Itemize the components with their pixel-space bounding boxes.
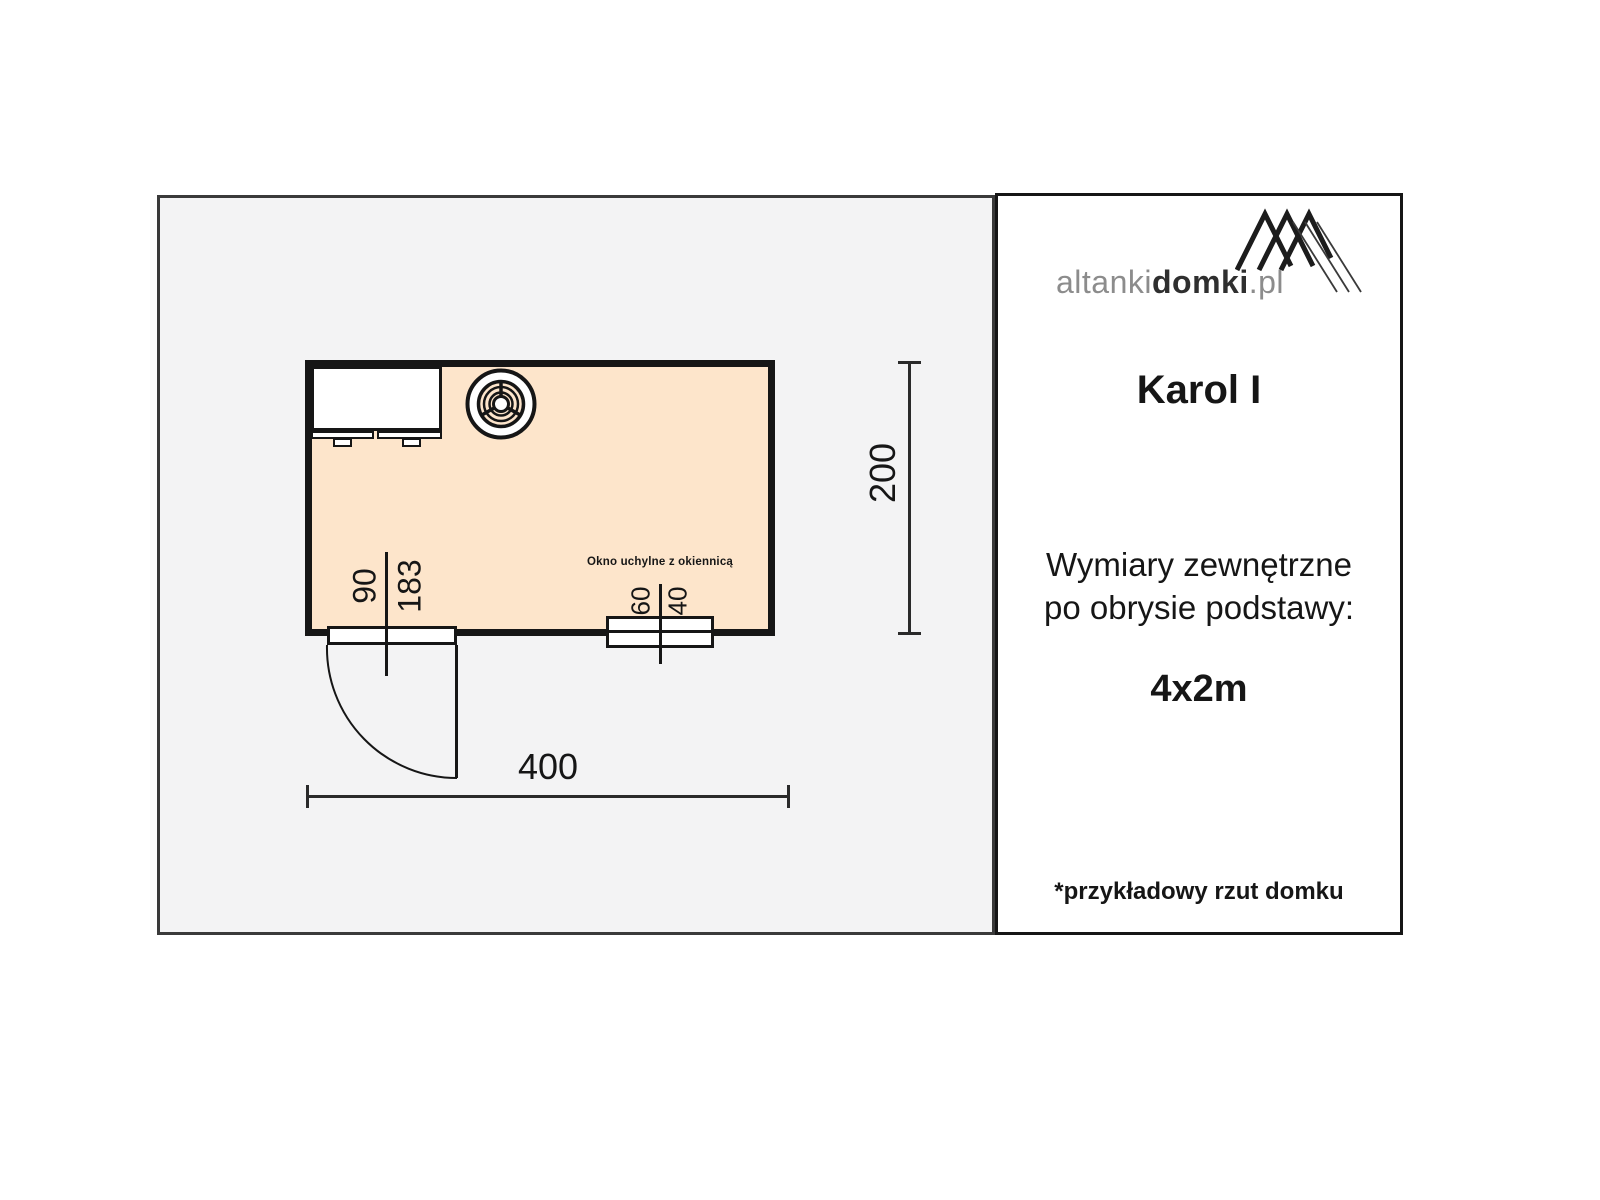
dimension-cap [787,785,790,808]
overall-width-dimension: 400 [448,746,648,788]
dimensions-caption-line1: Wymiary zewnętrzne [995,543,1403,586]
width-dimension-line [307,795,789,798]
size-value: 4x2m [995,668,1403,711]
door-swing-arc [323,642,463,784]
door-height-dimension: 183 [392,559,429,612]
counter-table [311,366,442,431]
counter-foot [333,438,352,447]
dimensions-caption: Wymiary zewnętrzne po obrysie podstawy: [995,543,1403,629]
footnote: *przykładowy rzut domku [995,878,1403,906]
door-dimension-line [385,552,388,676]
dimension-cap [306,785,309,808]
depth-dimension-line [908,362,911,635]
window-caption: Okno uchylne z okiennicą [560,556,760,568]
window-width-dimension: 60 [626,587,657,616]
stove-icon [463,366,539,442]
window-height-dimension: 40 [663,587,694,616]
dimension-cap [898,632,921,635]
logo-part-gray: altanki [1056,264,1152,300]
overall-depth-dimension: 200 [862,443,904,503]
counter-foot [402,438,421,447]
floor-plan-sheet: 90 183 Okno uchylne z okiennicą 60 40 40… [0,0,1600,1200]
door-width-dimension: 90 [347,568,384,604]
model-title: Karol I [995,368,1403,413]
dimension-cap [898,361,921,364]
logo-roof-icon [1235,206,1363,294]
dimensions-caption-line2: po obrysie podstawy: [995,586,1403,629]
